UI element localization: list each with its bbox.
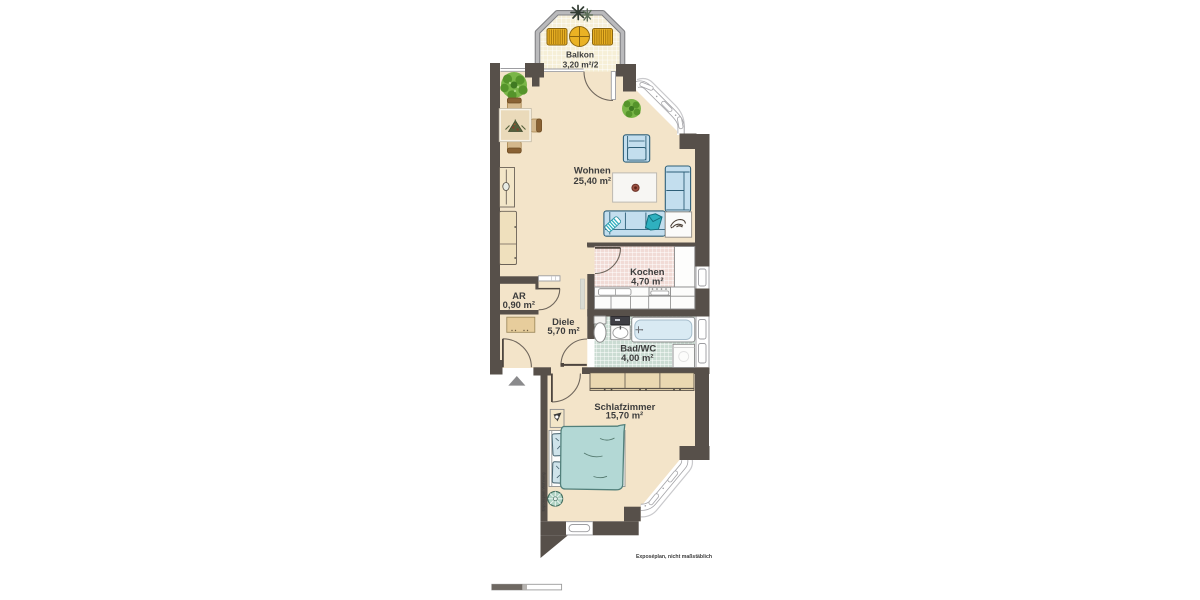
svg-text:4,00 m²: 4,00 m² — [621, 352, 653, 363]
svg-text:25,40 m²: 25,40 m² — [574, 175, 612, 186]
svg-text:15,70 m²: 15,70 m² — [606, 410, 644, 421]
svg-text:Balkon: Balkon — [566, 50, 594, 60]
svg-text:3,20 m²/2: 3,20 m²/2 — [563, 60, 599, 70]
svg-text:0,90 m²: 0,90 m² — [503, 299, 535, 310]
svg-text:5,70 m²: 5,70 m² — [547, 325, 579, 336]
svg-text:Exposeplan Wohnung: Exposeplan Wohnung — [540, 472, 545, 511]
svg-text:4,70 m²: 4,70 m² — [631, 276, 663, 287]
svg-text:Exposéplan, nicht maßstäblich: Exposéplan, nicht maßstäblich — [636, 554, 712, 560]
